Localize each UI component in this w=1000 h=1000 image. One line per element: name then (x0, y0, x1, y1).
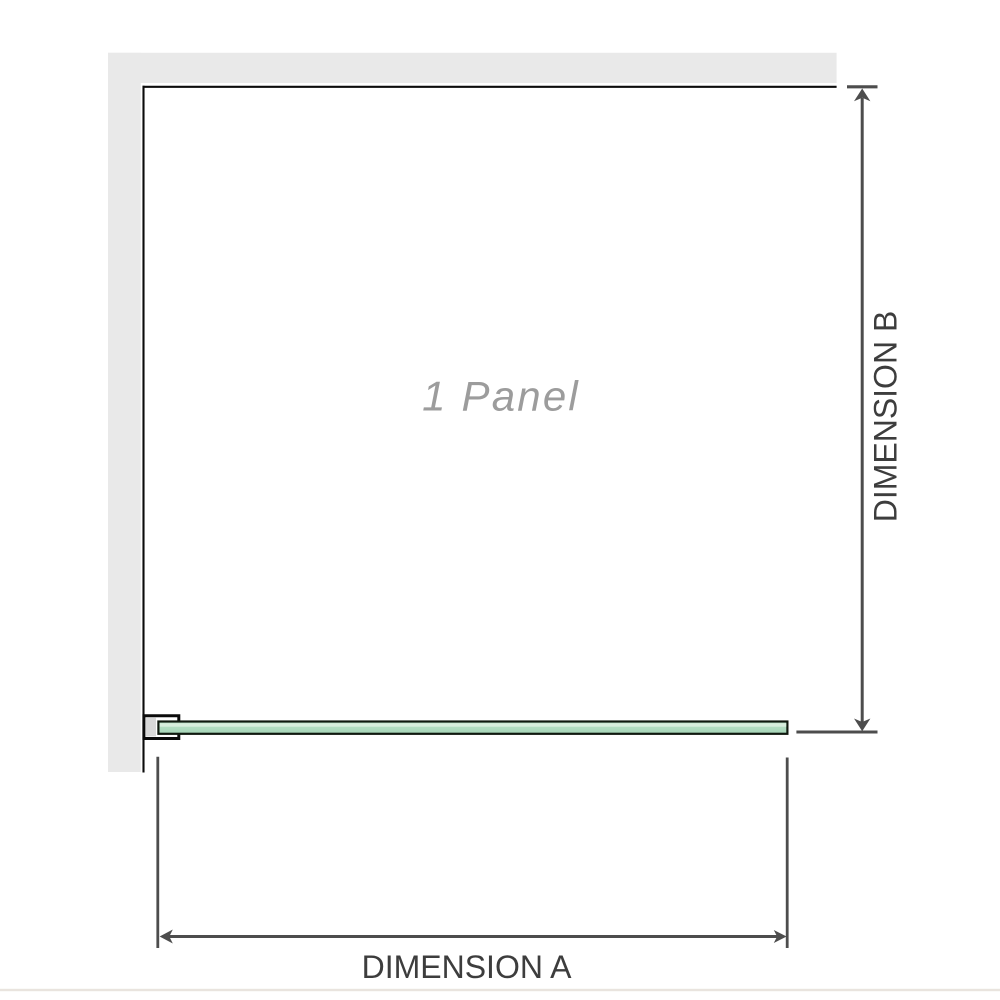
svg-text:DIMENSION A: DIMENSION A (362, 949, 572, 985)
svg-text:1 Panel: 1 Panel (422, 373, 580, 420)
svg-text:DIMENSION B: DIMENSION B (868, 311, 904, 523)
